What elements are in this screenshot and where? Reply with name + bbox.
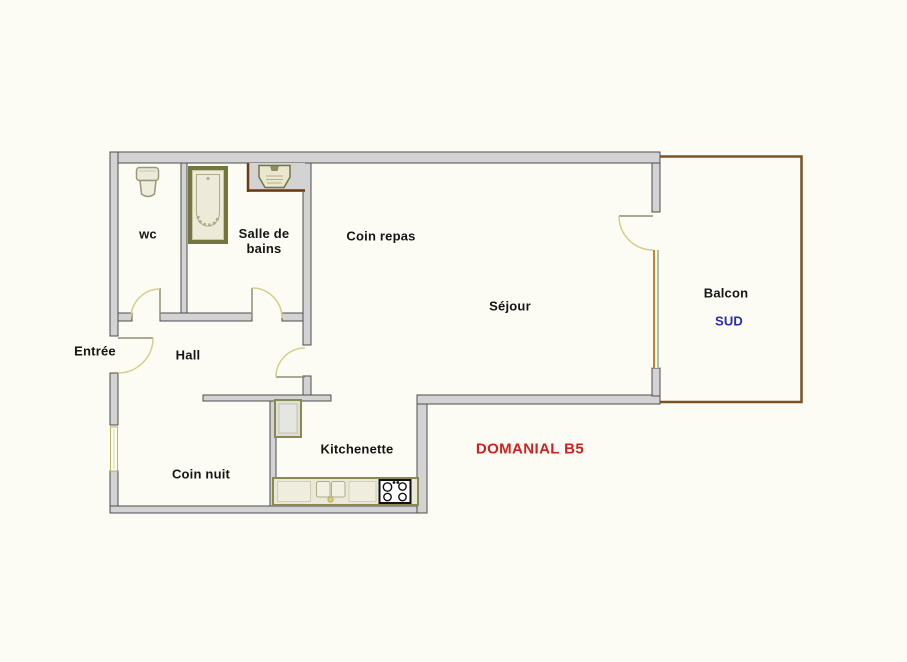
wall-sejour-right-upper xyxy=(652,163,660,212)
label-domanial-b5: DOMANIAL B5 xyxy=(476,441,584,458)
wall-bath-bottom-c xyxy=(282,313,303,321)
wall-left-upper xyxy=(110,152,118,336)
wall-top xyxy=(110,152,660,163)
wall-bath-bottom-a xyxy=(118,313,132,321)
counter-cabinet-right xyxy=(349,482,376,502)
label-kitchenette: Kitchenette xyxy=(321,442,394,457)
wall-bottom xyxy=(110,506,427,513)
wall-sejour-bottom xyxy=(417,395,660,404)
window-balcony-sliding xyxy=(653,250,660,368)
door-wc xyxy=(131,288,160,318)
label-salle-de-bains-line2: bains xyxy=(247,241,282,256)
kitchen-counter xyxy=(273,478,418,505)
wall-hall-bottom xyxy=(203,395,331,401)
floor-plan: wc Salle de bains Coin repas Séjour Balc… xyxy=(0,0,907,662)
label-hall: Hall xyxy=(176,348,201,363)
label-coin-repas: Coin repas xyxy=(346,229,415,244)
door-hall-sejour xyxy=(276,348,305,377)
window-coin-nuit xyxy=(111,427,118,471)
balcony-outline xyxy=(660,157,802,403)
label-sejour: Séjour xyxy=(489,299,531,314)
stove-icon xyxy=(380,480,411,503)
door-bathroom xyxy=(252,288,282,318)
washbasin-icon xyxy=(259,166,290,188)
label-wc: wc xyxy=(139,227,157,242)
counter-cabinet-left xyxy=(278,482,311,502)
label-balcon: Balcon xyxy=(704,286,749,301)
label-salle-de-bains-line1: Salle de xyxy=(239,226,290,241)
wall-sejour-right-lower xyxy=(652,368,660,396)
toilet-icon xyxy=(137,168,159,197)
wall-left-middle xyxy=(110,373,118,425)
label-coin-nuit: Coin nuit xyxy=(172,467,230,482)
label-entree: Entrée xyxy=(74,344,116,359)
label-sud: SUD xyxy=(715,314,743,329)
wall-wc-bath-divider xyxy=(181,163,187,313)
door-entrance xyxy=(118,338,153,373)
label-salle-de-bains: Salle de bains xyxy=(225,226,303,256)
door-balcony xyxy=(619,216,653,250)
bathtub-icon xyxy=(188,166,228,244)
floor-plan-drawing xyxy=(0,0,907,662)
wall-bath-bottom-b xyxy=(160,313,252,321)
fridge-icon xyxy=(275,400,301,437)
